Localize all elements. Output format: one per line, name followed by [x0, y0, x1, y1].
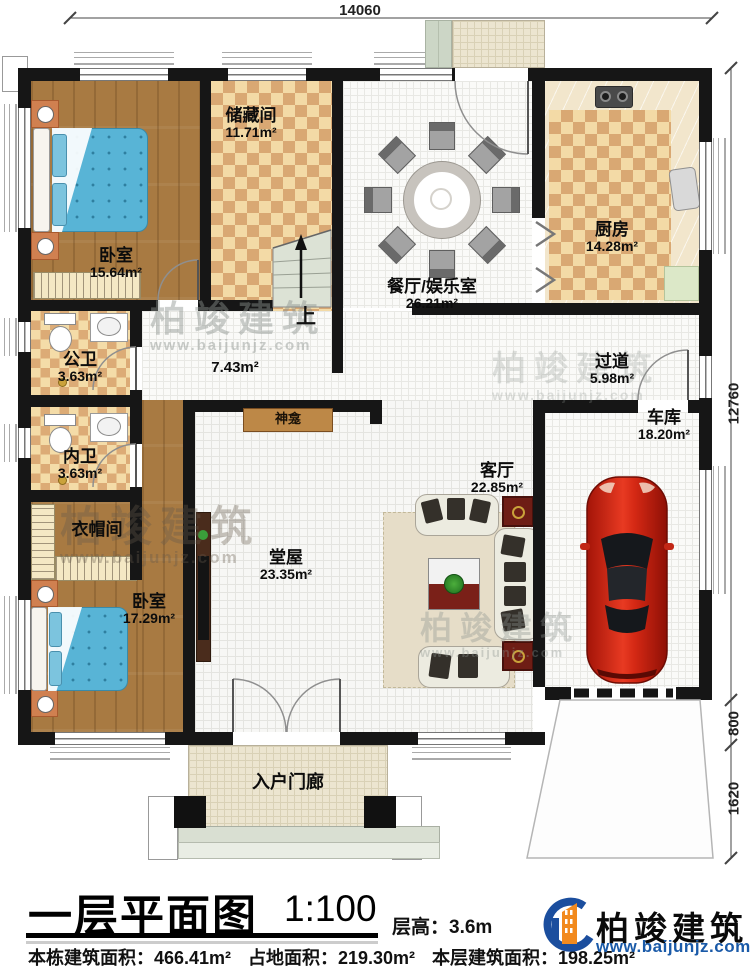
window-hall-south [418, 732, 505, 745]
pillow [52, 134, 67, 177]
window-storage [228, 68, 306, 81]
sill-lines [713, 466, 726, 594]
room-name: 内卫 [38, 447, 122, 466]
dim-right-bottom: 1620 [726, 771, 743, 827]
room-label-bedroom-bottom: 卧室 17.29m² [106, 592, 192, 627]
sofa-cushion [500, 534, 525, 558]
floor-wood-corridor [142, 400, 183, 732]
wall-storage-dining [332, 81, 343, 373]
wall-between-baths [31, 395, 142, 407]
wall-hall-west [183, 400, 195, 732]
room-name: 过道 [575, 352, 649, 371]
porch-column-left [174, 796, 206, 828]
end-table [502, 496, 534, 527]
room-area: 3.63m² [38, 466, 122, 482]
wall-garage-bottom-left [545, 687, 571, 700]
shrine-label: 神龛 [275, 411, 301, 426]
room-area: 11.71m² [203, 125, 299, 141]
room-area: 7.43m² [200, 360, 270, 377]
room-name: 储藏间 [203, 106, 299, 125]
window-public-bath [18, 322, 31, 352]
dining-chair [492, 187, 520, 213]
kitchen-counter [664, 266, 699, 301]
sill-lines [4, 596, 17, 694]
toilet-bowl [49, 326, 72, 352]
dim-top-width: 14060 [330, 2, 390, 19]
room-area: 14.28m² [564, 239, 660, 255]
pillow [52, 183, 67, 226]
rear-patio-step [425, 20, 452, 68]
room-area: 5.98m² [575, 371, 649, 387]
room-label-entry-porch: 入户门廊 [222, 772, 354, 792]
room-area: 17.29m² [106, 611, 192, 627]
room-area: 15.64m² [56, 265, 176, 281]
dining-chair [429, 250, 455, 278]
sill-lines [50, 747, 170, 760]
coffee-table-plant [444, 574, 464, 594]
room-label-corridor: 过道 5.98m² [575, 352, 649, 387]
room-name: 公卫 [38, 350, 122, 369]
kitchen-sink [668, 166, 701, 211]
room-name: 客厅 [454, 461, 540, 480]
bed-headboard [33, 128, 50, 232]
nightstand [31, 580, 58, 607]
end-table [502, 641, 534, 671]
dim-right-main: 12760 [726, 374, 743, 434]
toilet-tank [44, 414, 76, 426]
cloakroom-rack-horizontal [55, 556, 137, 581]
cloakroom-rack-vertical [31, 504, 55, 580]
toilet-tank [44, 313, 76, 325]
pillow [49, 651, 62, 686]
sofa-cushion [458, 654, 478, 678]
nightstand [31, 690, 58, 717]
opening-front-door [233, 732, 340, 745]
window-bedroom-top [80, 68, 168, 81]
room-name: 入户门廊 [222, 772, 354, 792]
room-area: 18.20m² [620, 427, 708, 443]
shrine-shelf: 神龛 [243, 408, 333, 432]
nightstand [31, 100, 59, 128]
room-label-public-bath: 公卫 3.63m² [38, 350, 122, 385]
tv [198, 556, 209, 640]
room-name: 卧室 [106, 592, 192, 611]
room-label-bedroom-top: 卧室 15.64m² [56, 246, 176, 281]
sofa-cushion [504, 562, 526, 582]
driveway [527, 700, 713, 858]
rear-patio [452, 20, 545, 68]
wall-garage-west [533, 400, 545, 687]
room-area: 3.63m² [38, 369, 122, 385]
brand-logo-icon [540, 894, 594, 960]
window-inner-bath [18, 428, 31, 458]
window-garage-east [699, 470, 712, 590]
room-area: 23.35m² [244, 567, 328, 583]
floor-garage [545, 412, 699, 687]
sill-lines [412, 747, 511, 760]
room-label-kitchen: 厨房 14.28m² [564, 220, 660, 255]
sill-lines [4, 104, 17, 232]
bed-headboard [31, 607, 47, 691]
floorplan-sheet: 神龛 [0, 0, 750, 974]
sofa-cushion [428, 653, 451, 680]
title-underline [26, 933, 378, 938]
bath-sink-basin [97, 317, 121, 336]
room-label-living-room: 客厅 22.85m² [454, 461, 540, 496]
room-label-inner-bath: 内卫 3.63m² [38, 447, 122, 482]
porch-step-2 [178, 842, 440, 859]
wall-band-b [198, 300, 273, 311]
window-dining [380, 68, 452, 81]
sofa-cushion [504, 586, 526, 606]
room-name: 卧室 [56, 246, 176, 265]
plant-small [198, 530, 208, 540]
window-bedroom-bottom [55, 732, 165, 745]
stairs-up-label: 上 [296, 300, 316, 329]
room-area: 26.21m² [353, 296, 511, 312]
sofa-cushion [500, 608, 525, 632]
building-total-area-text: 本栋建筑面积：466.41m² [28, 944, 231, 970]
wall-bath-closet [31, 490, 142, 502]
room-name: 餐厅/娱乐室 [353, 277, 511, 296]
room-name: 车库 [620, 408, 708, 427]
room-name: 衣帽间 [52, 520, 142, 539]
wall-hall-north-stub [370, 400, 382, 424]
room-label-garage: 车库 18.20m² [620, 408, 708, 443]
land-area-text: 占地面积：219.30m² [248, 944, 415, 970]
stove-burner [600, 91, 611, 102]
window-bedroom-bottom-west [18, 600, 31, 690]
nightstand [31, 232, 59, 260]
wall-garage-bottom-right [676, 687, 712, 700]
sill-lines [4, 424, 17, 462]
wall-band-a [18, 300, 158, 311]
floor-kitchen-checker [549, 110, 671, 300]
window-corridor-east [699, 356, 712, 398]
floor-height-text: 层高：3.6m [392, 912, 492, 939]
room-label-dining: 餐厅/娱乐室 26.21m² [353, 277, 511, 312]
sill-lines [4, 318, 17, 356]
pillow [49, 612, 62, 647]
brand-website: www.baijunjz.com [596, 937, 750, 957]
room-name: 厨房 [564, 220, 660, 239]
opening-rear-door [455, 68, 528, 81]
sheet-scale: 1:100 [284, 888, 377, 930]
porch-step-1 [178, 826, 440, 843]
wall-dining-kitchen [532, 81, 545, 218]
dim-right-mid: 800 [726, 702, 743, 746]
bath-sink-basin [97, 417, 121, 436]
stove-burner [617, 91, 628, 102]
sill-lines [713, 138, 726, 254]
dining-chair [364, 187, 392, 213]
room-label-mid-hall: 7.43m² [200, 360, 270, 377]
room-label-storage: 储藏间 11.71m² [203, 106, 299, 141]
room-label-main-hall: 堂屋 23.35m² [244, 548, 328, 583]
sill-lines [74, 52, 174, 65]
sofa-cushion [447, 498, 465, 520]
porch-column-right [364, 796, 396, 828]
sill-lines [222, 52, 312, 65]
dining-chair [429, 122, 455, 150]
room-area: 22.85m² [454, 480, 540, 496]
dining-table-center [430, 188, 452, 210]
wall-bath-east-1 [130, 311, 142, 347]
window-kitchen-east [699, 142, 712, 250]
room-name: 堂屋 [244, 548, 328, 567]
room-label-cloakroom: 衣帽间 [52, 520, 142, 539]
window-bedroom-top-west [18, 108, 31, 228]
